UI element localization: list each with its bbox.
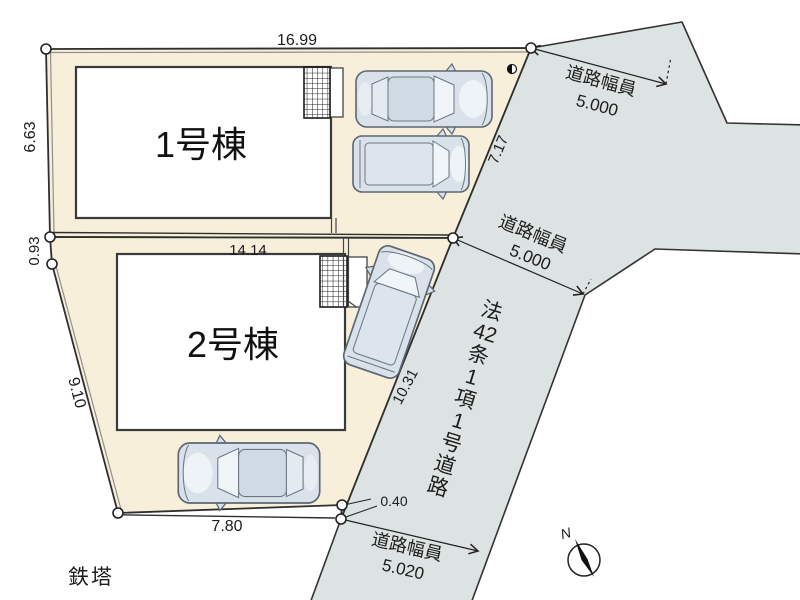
dim-lot1-left: 6.63 (22, 121, 39, 152)
tower-label: 鉄塔 (68, 566, 114, 589)
dim-lot1-top: 16.99 (277, 32, 317, 49)
benchmark-icon (508, 65, 517, 74)
hatch-area-icon (304, 67, 330, 118)
dim-lot2-top: 14.14 (229, 242, 267, 259)
site-plan-page: N 1号棟 2号棟 16.99 6.63 0.93 9.10 7.80 14.1… (0, 0, 800, 600)
compass-north-label: N (559, 524, 574, 542)
car-icon (356, 64, 492, 134)
dim-left-offset: 0.93 (26, 236, 43, 265)
building-2-label: 2号棟 (187, 324, 279, 365)
car-icon (178, 436, 319, 511)
site-plan-drawing: N 1号棟 2号棟 16.99 6.63 0.93 9.10 7.80 14.1… (0, 0, 800, 600)
dim-corner-offset: 0.40 (380, 493, 407, 509)
dim-lot2-bottom: 7.80 (211, 518, 242, 535)
car-icon (353, 129, 469, 199)
compass-icon: N (559, 524, 600, 577)
building-1-label: 1号棟 (155, 124, 247, 165)
